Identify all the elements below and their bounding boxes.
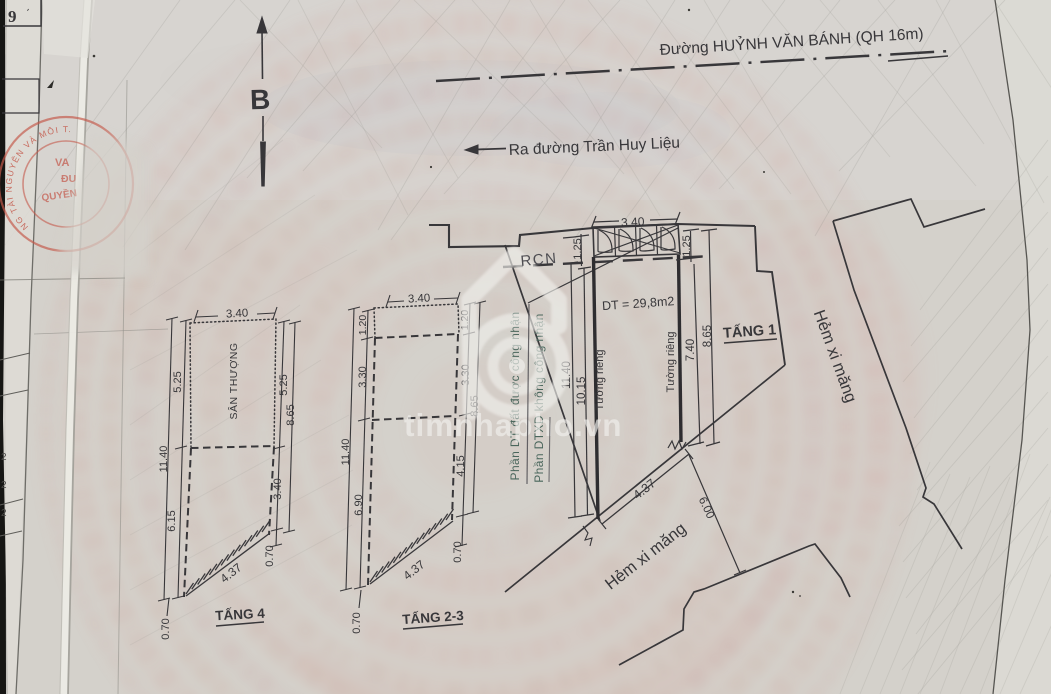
svg-text:3.40: 3.40	[226, 307, 249, 320]
svg-text:0.70: 0.70	[452, 541, 464, 562]
svg-text:6.90: 6.90	[353, 494, 365, 515]
svg-text:8.65: 8.65	[285, 404, 297, 425]
svg-text:3.30: 3.30	[357, 366, 369, 387]
svg-text:timnhapho.vn: timnhapho.vn	[404, 407, 623, 443]
svg-text:ĐU: ĐU	[61, 173, 76, 185]
svg-text:RCN: RCN	[520, 250, 558, 270]
svg-text:11.40: 11.40	[158, 446, 170, 473]
svg-text:2: 2	[1, 508, 7, 519]
svg-text:VA: VA	[55, 157, 70, 169]
svg-text:11.40: 11.40	[340, 439, 352, 466]
svg-text:3.40: 3.40	[621, 214, 645, 229]
svg-text:7.40: 7.40	[685, 339, 697, 361]
svg-text:0.70: 0.70	[264, 545, 276, 566]
svg-text:3.40: 3.40	[408, 292, 431, 305]
svg-text:B: B	[249, 84, 270, 116]
svg-text:1.25: 1.25	[681, 235, 693, 256]
svg-text:SÂN THƯỢNG: SÂN THƯỢNG	[227, 342, 240, 419]
svg-text:5.25: 5.25	[278, 374, 290, 395]
svg-text:8.65: 8.65	[702, 325, 714, 347]
svg-text:0.70: 0.70	[351, 612, 363, 633]
svg-text:1.20: 1.20	[357, 315, 369, 336]
svg-text:4.15: 4.15	[455, 455, 467, 476]
svg-text:9: 9	[8, 7, 17, 26]
svg-text:1.25: 1.25	[572, 238, 584, 259]
svg-text:10.15: 10.15	[576, 377, 588, 406]
svg-text:2: 2	[1, 452, 7, 463]
svg-text:2: 2	[1, 480, 7, 491]
svg-text:Tường riêng: Tường riêng	[594, 349, 606, 410]
svg-text:0.70: 0.70	[160, 618, 172, 639]
svg-text:Tường riêng: Tường riêng	[665, 331, 677, 392]
svg-text:TẤNG 4: TẤNG 4	[215, 606, 266, 624]
svg-text:3.40: 3.40	[272, 478, 284, 499]
svg-text:6.15: 6.15	[166, 510, 178, 531]
svg-text:5.25: 5.25	[172, 371, 184, 392]
